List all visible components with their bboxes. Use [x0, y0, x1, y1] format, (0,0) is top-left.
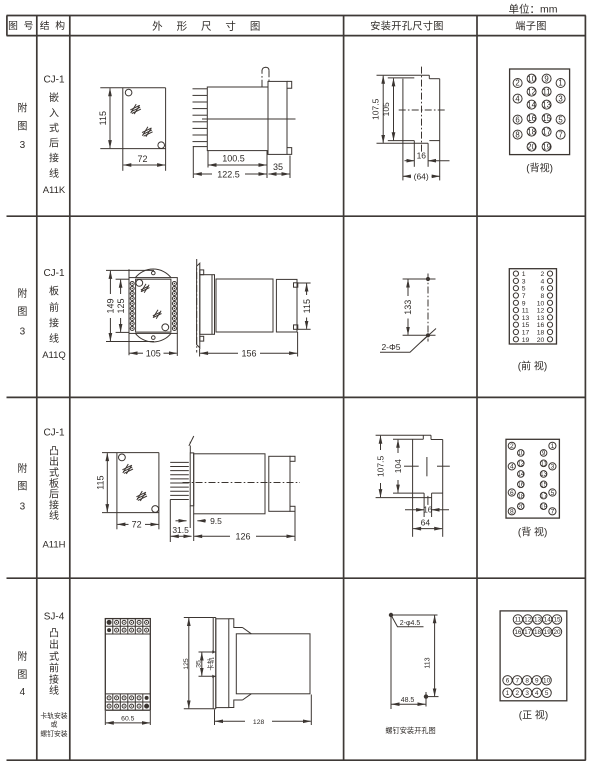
- svg-text:10: 10: [543, 678, 551, 685]
- svg-text:前: 前: [49, 301, 59, 314]
- svg-text:或: 或: [51, 719, 58, 728]
- svg-text:外 形 尺 寸 图: 外 形 尺 寸 图: [152, 20, 266, 33]
- svg-text:图: 图: [17, 481, 27, 493]
- svg-text:18: 18: [527, 127, 536, 136]
- svg-text:4: 4: [535, 690, 539, 697]
- svg-text:133: 133: [403, 300, 413, 315]
- svg-text:后: 后: [49, 138, 59, 150]
- svg-text:107.5: 107.5: [376, 455, 386, 477]
- svg-text:4: 4: [515, 94, 520, 103]
- svg-text:4: 4: [20, 687, 26, 698]
- svg-text:结 构: 结 构: [40, 19, 67, 32]
- svg-text:线: 线: [49, 684, 59, 697]
- svg-text:SJ-4: SJ-4: [44, 611, 65, 622]
- svg-text:5: 5: [545, 690, 549, 697]
- svg-text:CJ-1: CJ-1: [43, 75, 65, 86]
- svg-text:9: 9: [522, 300, 526, 307]
- svg-text:1: 1: [558, 79, 562, 88]
- svg-text:20: 20: [553, 629, 561, 636]
- svg-text:安装开孔尺寸图: 安装开孔尺寸图: [370, 20, 443, 33]
- svg-text:线: 线: [49, 332, 59, 345]
- svg-text:20: 20: [527, 142, 536, 151]
- svg-text:15: 15: [540, 482, 547, 489]
- svg-text:(背视): (背视): [526, 162, 553, 175]
- svg-text:16: 16: [527, 114, 536, 123]
- svg-text:附: 附: [17, 462, 27, 475]
- svg-text:15: 15: [553, 617, 561, 624]
- svg-text:5: 5: [558, 115, 563, 124]
- svg-text:12: 12: [524, 617, 532, 624]
- svg-text:3: 3: [558, 94, 562, 103]
- svg-text:7: 7: [558, 130, 562, 139]
- svg-text:35: 35: [273, 162, 283, 172]
- svg-text:卡轨安装: 卡轨安装: [40, 711, 67, 720]
- svg-text:接: 接: [49, 673, 59, 686]
- svg-text:17: 17: [524, 629, 532, 636]
- svg-text:12: 12: [537, 308, 545, 315]
- svg-text:105: 105: [146, 349, 161, 359]
- svg-text:1: 1: [506, 690, 510, 697]
- svg-text:卡轨: 卡轨: [206, 657, 215, 671]
- svg-text:19: 19: [542, 142, 551, 151]
- svg-text:2: 2: [515, 79, 519, 88]
- svg-text:31.5: 31.5: [172, 525, 189, 535]
- svg-text:14: 14: [527, 100, 536, 109]
- svg-text:11: 11: [543, 87, 551, 96]
- svg-text:3: 3: [525, 690, 529, 697]
- svg-text:8: 8: [515, 130, 519, 139]
- svg-text:18: 18: [517, 493, 524, 500]
- svg-text:接: 接: [49, 317, 59, 330]
- svg-text:104: 104: [393, 459, 403, 473]
- svg-text:板: 板: [49, 477, 59, 490]
- svg-text:16: 16: [514, 629, 522, 636]
- svg-text:13: 13: [537, 315, 545, 322]
- svg-text:(背 视): (背 视): [518, 525, 547, 538]
- svg-text:125: 125: [183, 658, 190, 670]
- svg-text:(64): (64): [414, 171, 429, 181]
- svg-text:线: 线: [49, 509, 59, 522]
- svg-text:接: 接: [49, 498, 59, 511]
- svg-text:4: 4: [510, 464, 514, 471]
- svg-text:图: 图: [17, 306, 27, 318]
- svg-text:105: 105: [381, 102, 391, 116]
- svg-text:出: 出: [49, 455, 59, 468]
- svg-text:3: 3: [551, 464, 555, 471]
- svg-text:线: 线: [49, 167, 59, 180]
- svg-text:35: 35: [196, 660, 203, 668]
- svg-text:64: 64: [421, 518, 431, 528]
- svg-text:6: 6: [506, 678, 510, 685]
- svg-text:图: 图: [17, 120, 27, 132]
- svg-text:入: 入: [49, 108, 59, 119]
- svg-text:3: 3: [20, 327, 26, 338]
- svg-text:19: 19: [522, 337, 530, 344]
- svg-text:4: 4: [541, 278, 545, 285]
- svg-text:122.5: 122.5: [217, 169, 240, 179]
- svg-text:149: 149: [106, 298, 116, 313]
- svg-text:CJ-1: CJ-1: [43, 428, 65, 439]
- svg-text:10: 10: [527, 74, 536, 83]
- svg-text:15: 15: [522, 322, 530, 329]
- svg-text:115: 115: [98, 111, 108, 125]
- svg-text:13: 13: [540, 471, 547, 478]
- svg-text:螺钉安装: 螺钉安装: [40, 729, 67, 738]
- svg-text:凸: 凸: [49, 628, 59, 640]
- svg-text:A11Q: A11Q: [42, 350, 66, 361]
- svg-text:5: 5: [522, 286, 526, 293]
- svg-text:20: 20: [537, 337, 545, 344]
- svg-text:附: 附: [17, 650, 27, 663]
- svg-text:2: 2: [510, 443, 514, 450]
- svg-text:10: 10: [517, 450, 524, 457]
- svg-text:13: 13: [542, 100, 551, 109]
- svg-text:17: 17: [540, 493, 547, 500]
- svg-text:10: 10: [537, 300, 545, 307]
- svg-text:7: 7: [522, 293, 526, 300]
- svg-text:16: 16: [417, 150, 427, 160]
- svg-text:18: 18: [534, 629, 542, 636]
- svg-text:60.5: 60.5: [121, 716, 134, 723]
- svg-text:19: 19: [540, 503, 547, 510]
- svg-text:128: 128: [253, 719, 265, 726]
- svg-text:图 号: 图 号: [8, 20, 35, 32]
- svg-text:15: 15: [542, 114, 551, 123]
- svg-text:6: 6: [515, 115, 519, 124]
- svg-text:凸: 凸: [49, 445, 59, 457]
- svg-text:图: 图: [17, 669, 27, 681]
- svg-text:13: 13: [522, 315, 530, 322]
- svg-text:14: 14: [517, 471, 524, 478]
- svg-text:1: 1: [551, 443, 555, 450]
- svg-text:126: 126: [235, 532, 250, 542]
- svg-text:16: 16: [537, 322, 545, 329]
- svg-text:单位：mm: 单位：mm: [509, 3, 558, 16]
- svg-text:72: 72: [137, 154, 147, 164]
- svg-text:式: 式: [49, 122, 59, 135]
- svg-text:5: 5: [551, 490, 555, 497]
- svg-text:6: 6: [541, 286, 545, 293]
- svg-text:端子图: 端子图: [515, 20, 546, 33]
- svg-text:18: 18: [537, 330, 545, 337]
- svg-text:9: 9: [544, 74, 548, 83]
- svg-text:9: 9: [542, 450, 546, 457]
- svg-text:113: 113: [424, 657, 431, 668]
- svg-text:14: 14: [544, 617, 552, 624]
- svg-text:3: 3: [20, 140, 26, 151]
- svg-text:7: 7: [516, 678, 520, 685]
- svg-text:式: 式: [49, 466, 59, 479]
- svg-text:8: 8: [510, 509, 514, 516]
- svg-text:CJ-1: CJ-1: [43, 268, 65, 279]
- svg-text:11: 11: [540, 461, 547, 468]
- svg-text:2: 2: [541, 271, 545, 278]
- svg-text:16: 16: [423, 506, 432, 515]
- svg-text:(前 视): (前 视): [518, 359, 547, 372]
- svg-text:72: 72: [132, 520, 142, 530]
- svg-text:螺钉安装开孔图: 螺钉安装开孔图: [385, 726, 435, 735]
- svg-text:(正 视): (正 视): [519, 708, 548, 721]
- svg-text:式: 式: [49, 650, 59, 663]
- svg-text:附: 附: [17, 102, 27, 115]
- svg-text:2-Φ5: 2-Φ5: [381, 342, 400, 352]
- svg-text:12: 12: [527, 87, 536, 96]
- svg-text:100.5: 100.5: [222, 154, 245, 164]
- svg-text:3: 3: [522, 278, 526, 285]
- svg-text:附: 附: [17, 287, 27, 300]
- svg-text:8: 8: [525, 678, 529, 685]
- svg-text:7: 7: [551, 509, 555, 516]
- svg-text:48.5: 48.5: [401, 697, 415, 704]
- svg-text:107.5: 107.5: [371, 98, 381, 120]
- svg-text:1: 1: [522, 271, 526, 278]
- svg-text:12: 12: [517, 461, 524, 468]
- svg-text:11: 11: [515, 617, 522, 624]
- svg-text:11: 11: [522, 308, 529, 315]
- svg-text:A11K: A11K: [43, 185, 66, 196]
- svg-text:16: 16: [517, 482, 524, 489]
- svg-text:A11H: A11H: [42, 539, 65, 550]
- svg-text:9.5: 9.5: [210, 516, 222, 526]
- svg-text:125: 125: [116, 298, 126, 313]
- svg-text:2-φ4.5: 2-φ4.5: [400, 620, 421, 627]
- svg-text:接: 接: [49, 152, 59, 165]
- svg-text:115: 115: [302, 299, 312, 313]
- svg-text:17: 17: [522, 330, 530, 337]
- svg-text:156: 156: [241, 349, 256, 359]
- svg-text:115: 115: [95, 475, 105, 489]
- svg-text:板: 板: [49, 285, 59, 298]
- svg-text:后: 后: [49, 489, 59, 501]
- svg-text:前: 前: [49, 662, 59, 675]
- svg-text:6: 6: [510, 490, 514, 497]
- svg-text:2: 2: [516, 690, 520, 697]
- svg-text:13: 13: [534, 617, 542, 624]
- svg-text:3: 3: [20, 502, 26, 513]
- svg-text:出: 出: [49, 638, 59, 651]
- svg-text:20: 20: [517, 503, 524, 510]
- svg-text:17: 17: [542, 127, 551, 136]
- svg-text:8: 8: [541, 293, 545, 300]
- svg-text:嵌: 嵌: [49, 92, 59, 104]
- svg-text:9: 9: [535, 678, 539, 685]
- svg-text:19: 19: [544, 629, 552, 636]
